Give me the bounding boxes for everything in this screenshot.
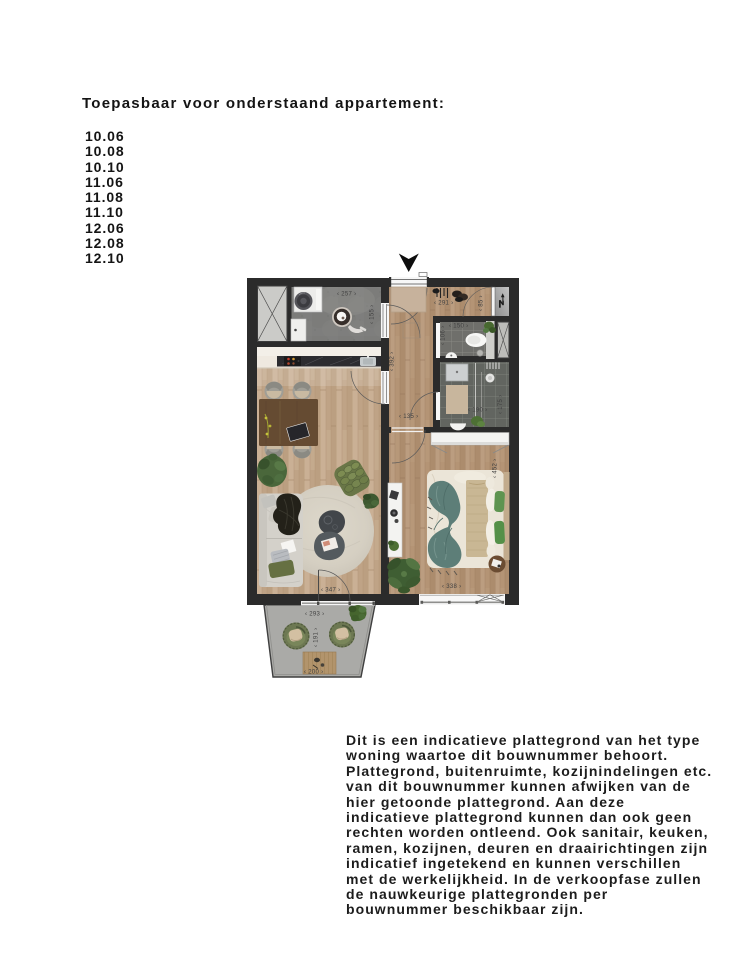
svg-text:‹ 293 ›: ‹ 293 › — [305, 612, 324, 618]
svg-text:‹ 106 ›: ‹ 106 › — [441, 326, 447, 345]
svg-text:‹ 155 ›: ‹ 155 › — [370, 305, 376, 324]
svg-text:‹ 190 ›: ‹ 190 › — [468, 408, 487, 414]
svg-text:‹ 291 ›: ‹ 291 › — [434, 301, 453, 307]
svg-text:‹ 135 ›: ‹ 135 › — [399, 414, 418, 420]
svg-text:‹ 338 ›: ‹ 338 › — [442, 584, 461, 590]
svg-text:‹ 85 ›: ‹ 85 › — [479, 295, 485, 311]
svg-text:‹ 200 ›: ‹ 200 › — [304, 670, 323, 676]
svg-text:‹ 392 ›: ‹ 392 › — [390, 352, 396, 371]
svg-text:‹ 452 ›: ‹ 452 › — [493, 459, 499, 478]
svg-text:‹ 150 ›: ‹ 150 › — [449, 324, 468, 330]
svg-text:‹ 191 ›: ‹ 191 › — [314, 628, 320, 647]
svg-text:‹ 175 ›: ‹ 175 › — [498, 395, 504, 414]
svg-text:‹ 257 ›: ‹ 257 › — [337, 292, 356, 298]
svg-text:‹ 347 ›: ‹ 347 › — [321, 588, 340, 594]
